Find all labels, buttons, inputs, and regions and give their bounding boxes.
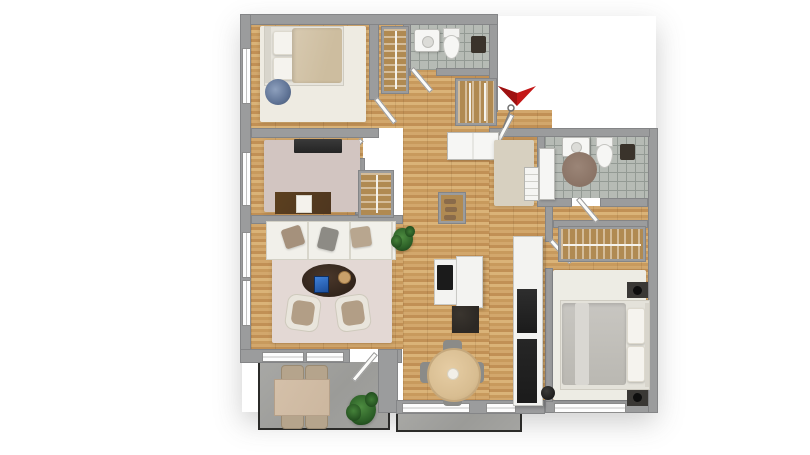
entrance-arrow-icon [498,86,536,106]
wardrobe-hallway-interior [458,81,494,123]
window-left-living-b [242,280,251,326]
kitchen-island [434,256,481,306]
appliance-black-upper [517,289,537,333]
table-centerpiece [447,368,459,380]
bed-2-folded-blanket [575,303,589,385]
nightstand-bottom [627,390,648,406]
bed-1-duvet [292,28,342,83]
wardrobe-bedroom2 [558,226,646,262]
window-dining-south-b [486,403,516,413]
window-left-bedroom1 [242,48,251,104]
shoe-cabinet-interior [441,195,463,221]
closet-office-interior [361,173,391,215]
wall-bedroom1-east [369,24,379,100]
lamp [633,286,642,295]
coffee-table [302,264,356,297]
bed-1-headboard [265,27,271,83]
sideboard-hallway [447,132,499,160]
shoe [444,199,456,204]
bed-2-pillow-top [627,308,645,344]
balcony-table [274,379,330,416]
balcony-small [396,412,522,432]
shower-fixture-bathroom2 [620,144,635,160]
kitchen-tall-unit [513,236,543,406]
wall-bedroom2-west-b [545,268,553,402]
bed-2-headboard [645,303,649,387]
tray [338,271,351,284]
round-rug-bathroom2 [562,152,597,187]
desk-office [275,192,331,214]
floor-plan-canvas [0,0,810,455]
window-left-office [242,152,251,206]
wall-bathroom2-south-b [600,198,648,207]
window-living-south-b [306,352,344,362]
toilet-bowl [443,35,460,59]
shoe [444,215,456,220]
wall-bathroom1-south-b [436,68,492,76]
shower-fixture-bathroom1 [471,36,486,53]
appliance-black-lower [517,339,537,403]
wardrobe-hallway [455,78,497,126]
nightstand-top [627,282,648,298]
armchair-left [284,293,323,333]
black-pot [541,386,555,400]
sofa-pillow-3 [350,226,373,249]
pouf-bedroom1 [265,79,291,105]
closet-bedroom1-interior [384,29,406,91]
kitchen-counter-dark [452,306,479,333]
bed-2-duvet [562,303,626,385]
window-living-south-a [262,352,304,362]
sofa [266,221,396,260]
sofa-pillow-1 [280,224,305,249]
toilet-bathroom1 [442,28,459,58]
entrance-key-icon [500,104,516,130]
bed-2-pillow-bottom [627,346,645,382]
desk-paper [296,195,312,213]
toilet-bathroom2 [595,137,612,167]
lamp [633,393,642,402]
window-bedroom2-south [554,403,626,413]
toilet-bowl [596,144,613,168]
washbasin-bowl [422,36,434,48]
window-left-living-a [242,232,251,278]
sofa-pillow-2 [317,226,340,252]
wardrobe-bedroom2-interior [561,229,643,259]
exterior-wall-balcony-column [378,349,398,413]
dining-table [427,348,481,402]
radiator-hallway [524,167,539,201]
cabinet-bathroom2 [539,148,555,200]
wall-bedroom2-west-a [545,206,553,242]
wall-bedroom1-office [251,128,379,138]
washbasin-bathroom1 [414,29,440,52]
island-right-module [456,256,483,308]
shoe-cabinet [438,192,466,224]
closet-office [358,170,394,218]
bed-1 [264,26,344,86]
tv-board-office [294,139,342,153]
armchair-right [334,293,373,333]
cooktop [437,265,453,290]
bed-2 [560,300,650,390]
tablet [314,276,329,293]
closet-bedroom1 [381,26,409,94]
shoe [445,207,457,212]
